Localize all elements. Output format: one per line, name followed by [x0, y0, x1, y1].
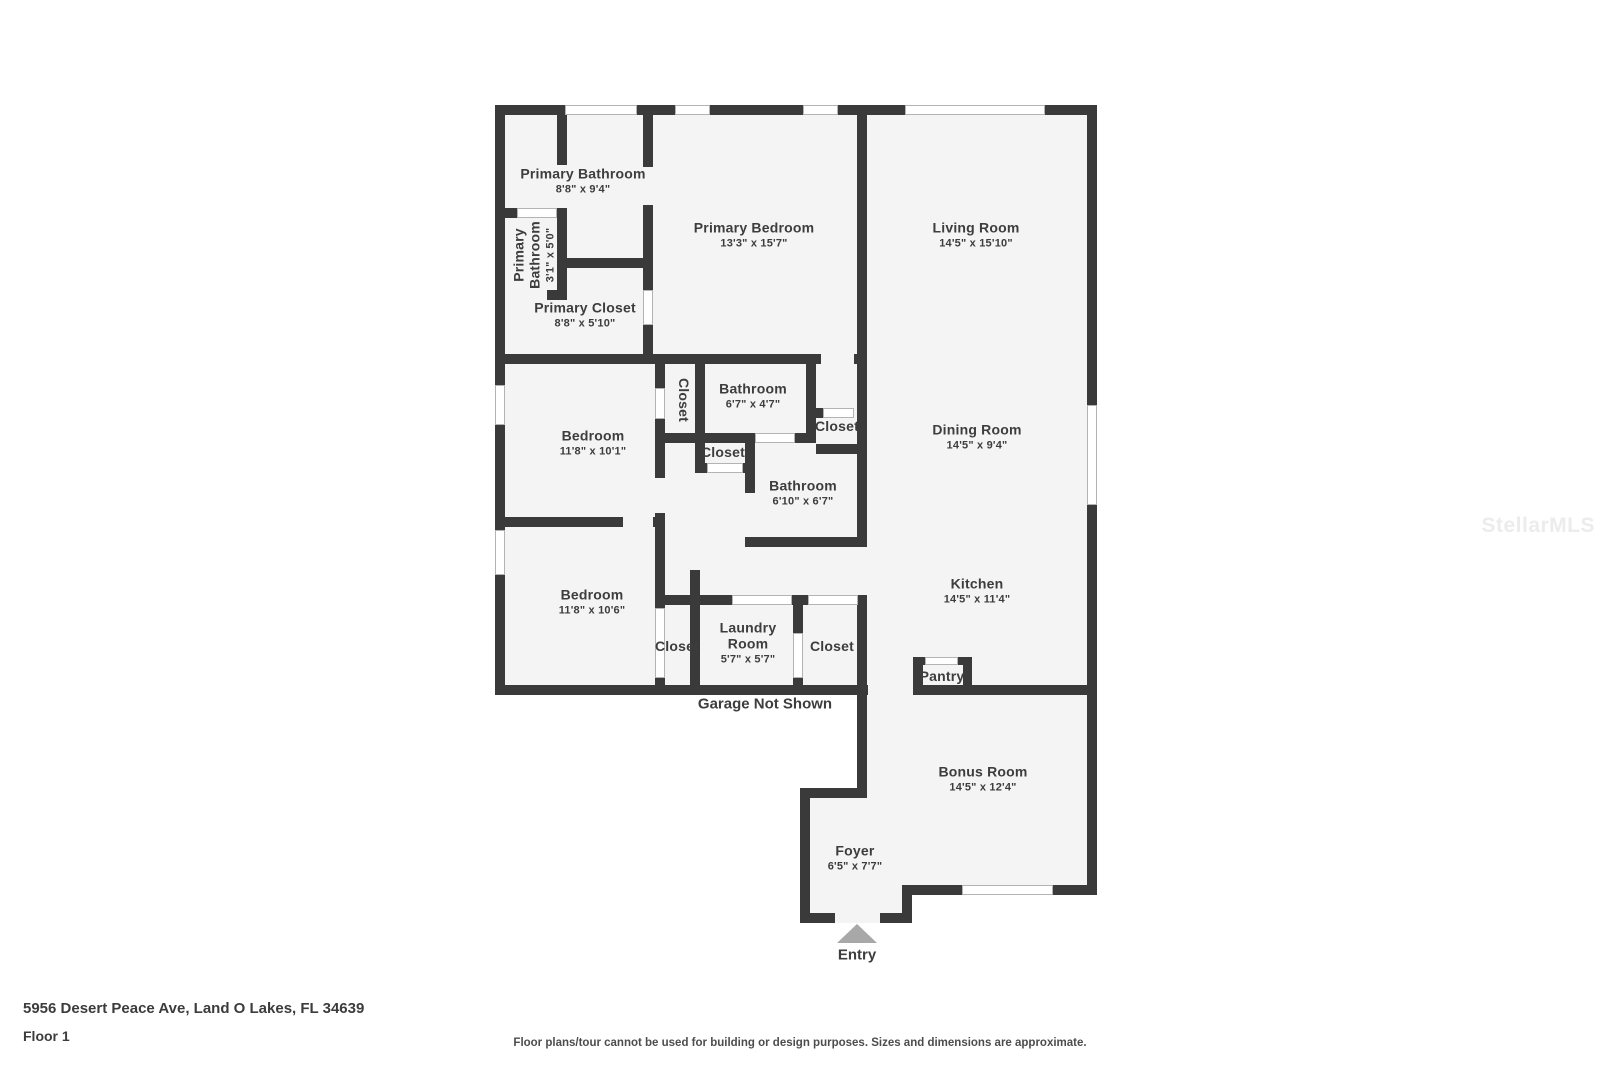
room-label-closet-4: Closet [655, 638, 699, 654]
window-or-door-opening [905, 105, 1045, 115]
wall-segment [655, 513, 665, 608]
room-label-closet-2: Closet [701, 444, 745, 460]
wall-segment [637, 105, 675, 115]
room-label-bathroom-2: Bathroom 6'10" x 6'7" [769, 478, 837, 509]
room-label-closet-hall: Closet [815, 418, 859, 434]
window-or-door-opening [823, 408, 854, 418]
room-label-primary-bathroom-small: Primary Bathroom 3'1" x 5'0" [510, 213, 557, 297]
room-label-kitchen: Kitchen 14'5" x 11'4" [944, 576, 1011, 607]
wall-segment [690, 570, 700, 685]
wall-segment [655, 433, 755, 443]
garage-note: Garage Not Shown [698, 696, 832, 713]
wall-segment [745, 433, 755, 493]
wall-segment [495, 575, 505, 695]
wall-segment [557, 258, 653, 268]
footer-floor-label: Floor 1 [23, 1028, 70, 1044]
window-or-door-opening [793, 633, 803, 678]
room-label-closet-5: Closet [810, 638, 854, 654]
room-label-primary-bedroom: Primary Bedroom 13'3" x 15'7" [694, 220, 814, 251]
wall-segment [816, 408, 823, 418]
entry-arrow-icon [837, 924, 877, 943]
footer-address: 5956 Desert Peace Ave, Land O Lakes, FL … [23, 1000, 364, 1017]
wall-segment [495, 105, 505, 385]
window-or-door-opening [707, 463, 743, 473]
plan-structure [0, 0, 1600, 1066]
wall-segment [655, 419, 665, 478]
wall-segment [1087, 505, 1097, 895]
wall-segment [800, 788, 810, 923]
footer-disclaimer: Floor plans/tour cannot be used for buil… [513, 1037, 1086, 1049]
wall-segment [800, 913, 835, 923]
window-or-door-opening [925, 657, 958, 665]
room-label-pantry: Pantry [920, 668, 965, 684]
window-or-door-opening [495, 530, 505, 575]
room-label-living-room: Living Room 14'5" x 15'10" [933, 220, 1020, 251]
wall-segment [858, 595, 867, 605]
wall-segment [857, 595, 867, 795]
wall-segment [557, 208, 567, 300]
room-label-bedroom-1: Bedroom 11'8" x 10'1" [560, 428, 627, 459]
wall-segment [495, 354, 821, 364]
wall-segment [857, 105, 867, 547]
window-or-door-opening [732, 595, 792, 605]
wall-segment [495, 685, 868, 695]
wall-segment [913, 657, 925, 665]
wall-segment [655, 595, 732, 605]
window-or-door-opening [655, 388, 665, 419]
room-label-closet-1: Closet [676, 378, 692, 422]
wall-segment [655, 678, 665, 695]
entry-label: Entry [838, 947, 876, 964]
wall-segment [745, 537, 867, 547]
wall-segment [495, 425, 505, 530]
room-label-foyer: Foyer 6'5" x 7'7" [828, 843, 883, 874]
room-label-primary-bathroom: Primary Bathroom 8'8" x 9'4" [520, 166, 645, 197]
room-label-bathroom-1: Bathroom 6'7" x 4'7" [719, 381, 787, 412]
wall-segment [695, 463, 707, 473]
wall-segment [495, 517, 623, 527]
room-label-bedroom-2: Bedroom 11'8" x 10'6" [559, 587, 626, 618]
window-or-door-opening [755, 433, 795, 443]
room-label-bonus-room: Bonus Room 14'5" x 12'4" [938, 764, 1027, 795]
wall-segment [655, 364, 665, 388]
room-label-dining-room: Dining Room 14'5" x 9'4" [932, 422, 1021, 453]
wall-segment [710, 105, 803, 115]
wall-segment [913, 685, 1097, 695]
wall-segment [793, 678, 803, 685]
window-or-door-opening [803, 105, 838, 115]
window-or-door-opening [495, 385, 505, 425]
room-label-primary-closet: Primary Closet 8'8" x 5'10" [534, 300, 636, 331]
wall-segment [643, 115, 653, 167]
wall-segment [557, 115, 567, 165]
wall-segment [793, 605, 803, 633]
floorplan-page: Primary Bathroom 8'8" x 9'4" Primary Bat… [0, 0, 1600, 1066]
wall-segment [1053, 885, 1097, 895]
window-or-door-opening [808, 595, 858, 605]
wall-segment [838, 105, 905, 115]
window-or-door-opening [643, 290, 653, 325]
window-or-door-opening [962, 885, 1053, 895]
room-label-laundry-room: Laundry Room 5'7" x 5'7" [711, 619, 785, 666]
wall-segment [792, 595, 808, 605]
window-or-door-opening [675, 105, 710, 115]
wall-segment [495, 105, 565, 115]
wall-segment [902, 885, 962, 895]
wall-segment [495, 290, 505, 300]
wall-segment [800, 788, 867, 798]
wall-segment [1087, 105, 1097, 405]
window-or-door-opening [1087, 405, 1097, 505]
window-or-door-opening [565, 105, 637, 115]
wall-segment [653, 517, 665, 527]
wall-segment [643, 205, 653, 290]
watermark: StellarMLS [1481, 514, 1595, 538]
